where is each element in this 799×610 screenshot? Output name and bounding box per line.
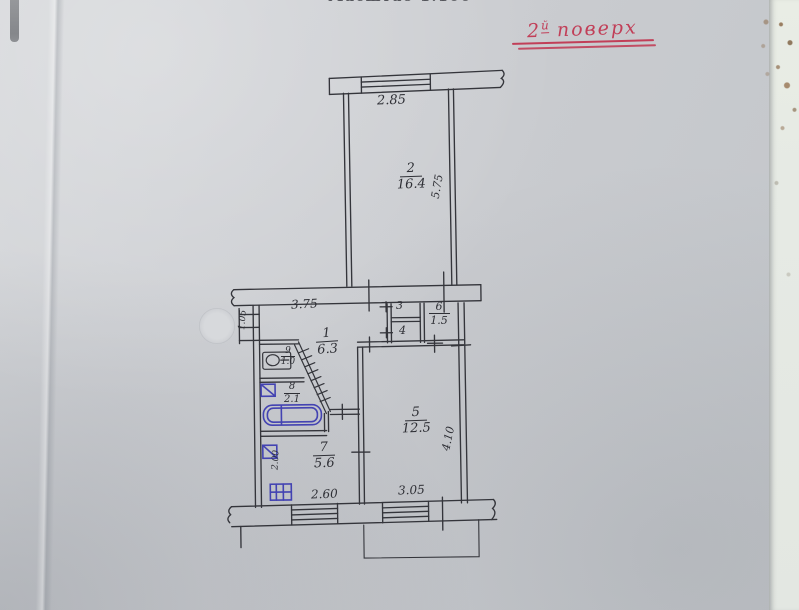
balcony-outline (364, 520, 479, 558)
window-icon (291, 503, 337, 525)
wall-break (228, 507, 232, 523)
right-outer-wall (458, 303, 467, 503)
room-label: 4 (399, 324, 406, 337)
room-label: 5 12.5 (394, 404, 437, 436)
dimension-label: 3.75 (291, 296, 318, 311)
bottom-wall (228, 499, 497, 547)
stove-icon (270, 484, 291, 500)
sink-icon (261, 384, 275, 396)
hall-bottom-wall (357, 335, 470, 353)
dimension-label: 1.05 (237, 310, 249, 331)
wall-break (231, 290, 234, 306)
room-label: 2 16.4 (389, 160, 432, 192)
dimension-label: 2.00 (271, 450, 282, 471)
room-label: 8 2.1 (278, 381, 306, 405)
room-label: 7 5.6 (304, 439, 343, 471)
room-label: 9 1.0 (276, 346, 300, 368)
wall-break (500, 70, 504, 87)
scanned-floor-plan-photo: Масштаб 1:100 2й поверх (0, 0, 799, 610)
dimension-label: 2.60 (311, 487, 338, 502)
bathtub-icon (263, 405, 321, 426)
room-label: 3 (396, 299, 403, 312)
room-label: 1 6.3 (307, 325, 347, 358)
left-outer-wall (239, 305, 261, 507)
dimension-label: 3.05 (398, 483, 425, 498)
dimension-label: 2.85 (377, 92, 406, 108)
room5-wall (351, 347, 371, 504)
room-label: 6 1.5 (424, 300, 454, 326)
wall-break (491, 499, 495, 519)
